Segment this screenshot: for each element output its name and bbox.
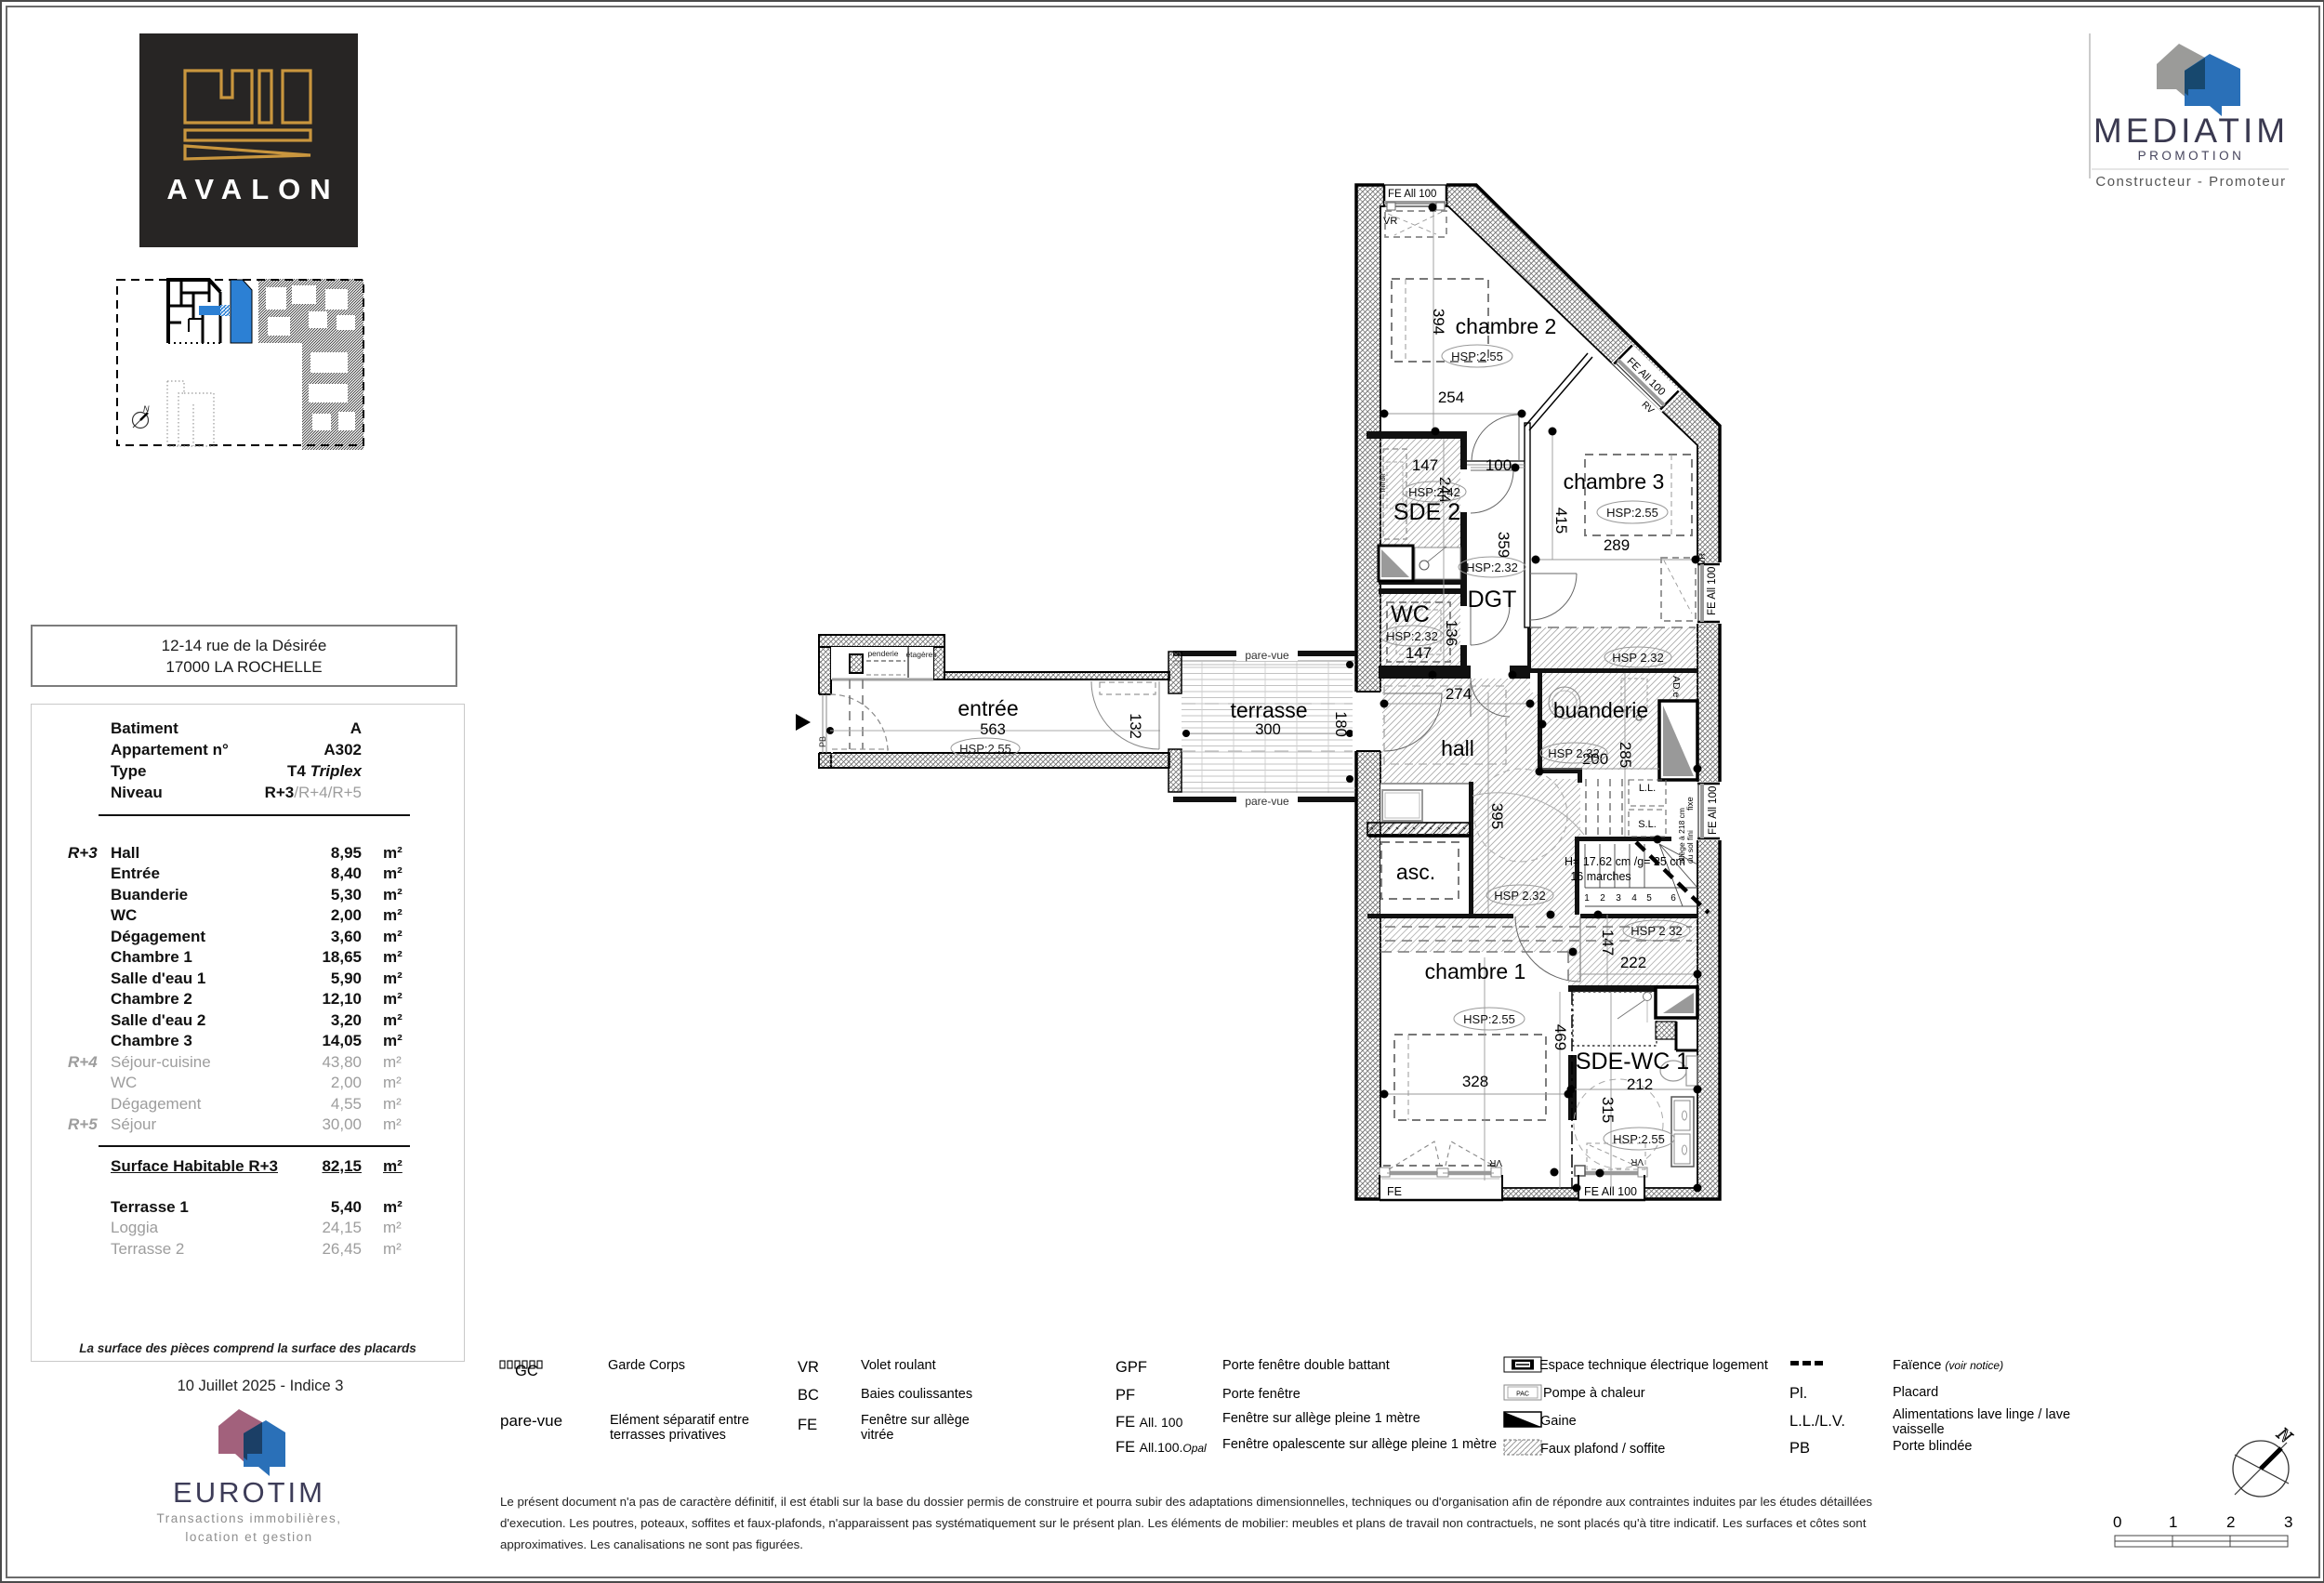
svg-text:HSP:2.42: HSP:2.42: [1408, 485, 1460, 499]
svg-text:HSP 2 32: HSP 2 32: [1631, 924, 1682, 938]
svg-text:254: 254: [1438, 389, 1464, 406]
svg-text:395: 395: [1488, 803, 1506, 829]
svg-text:PB: PB: [818, 736, 827, 747]
svg-text:SDE 2: SDE 2: [1393, 499, 1460, 525]
svg-text:147: 147: [1406, 644, 1432, 662]
svg-text:FE All 100: FE All 100: [1388, 189, 1436, 200]
svg-text:147: 147: [1412, 456, 1438, 474]
svg-text:FE All 100: FE All 100: [1707, 567, 1718, 615]
svg-text:H= 17.62 cm /g= 25 cm: H= 17.62 cm /g= 25 cm: [1565, 855, 1685, 868]
svg-text:fixe: fixe: [1685, 797, 1696, 811]
svg-text:chambre 1: chambre 1: [1425, 959, 1526, 983]
svg-text:VR: VR: [1489, 1157, 1502, 1167]
svg-text:6: 6: [1670, 893, 1676, 904]
svg-text:147: 147: [1599, 930, 1617, 956]
svg-text:3: 3: [1616, 893, 1621, 904]
svg-text:274: 274: [1446, 685, 1472, 703]
svg-text:285: 285: [1617, 742, 1634, 768]
svg-text:terrasse: terrasse: [1230, 698, 1307, 722]
svg-text:HSP:2.55: HSP:2.55: [1463, 1012, 1515, 1026]
svg-text:FE All 100: FE All 100: [1584, 1185, 1637, 1198]
svg-text:VR: VR: [1383, 216, 1397, 227]
svg-text:L.L.: L.L.: [1639, 783, 1656, 794]
svg-text:359: 359: [1495, 532, 1512, 558]
svg-text:300: 300: [1255, 721, 1281, 738]
svg-text:136: 136: [1443, 620, 1460, 646]
svg-text:WC: WC: [1391, 601, 1430, 627]
svg-text:S.L.: S.L.: [1638, 819, 1657, 830]
svg-text:132: 132: [1127, 713, 1143, 739]
svg-text:HSP:2.55: HSP:2.55: [1606, 506, 1658, 520]
svg-text:HSP 2.32: HSP 2.32: [1548, 746, 1599, 760]
svg-text:315: 315: [1599, 1097, 1617, 1123]
svg-text:5: 5: [1646, 893, 1652, 904]
svg-text:HSP:2.55: HSP:2.55: [1451, 350, 1503, 363]
svg-text:2: 2: [1600, 893, 1605, 904]
svg-text:1: 1: [1584, 893, 1590, 904]
svg-text:FE: FE: [1387, 1185, 1402, 1198]
svg-text:penderie: penderie: [867, 649, 898, 658]
svg-text:hall: hall: [1441, 736, 1474, 760]
svg-text:étagères: étagères: [905, 650, 936, 659]
svg-text:394: 394: [1430, 309, 1447, 335]
svg-text:chambre 2: chambre 2: [1456, 314, 1557, 338]
svg-text:16 marches: 16 marches: [1570, 870, 1631, 883]
svg-text:180: 180: [1332, 711, 1349, 737]
svg-text:415: 415: [1552, 508, 1570, 534]
svg-text:289: 289: [1604, 536, 1630, 554]
svg-text:asc.: asc.: [1396, 860, 1435, 884]
svg-text:SDE-WC 1: SDE-WC 1: [1576, 1049, 1689, 1075]
svg-text:328: 328: [1462, 1073, 1488, 1090]
svg-text:miroir: miroir: [1378, 472, 1387, 492]
svg-text:AD.e: AD.e: [1670, 676, 1682, 698]
svg-text:HSP:2.55: HSP:2.55: [959, 742, 1011, 756]
svg-text:HSP:2.55: HSP:2.55: [1613, 1132, 1665, 1146]
svg-text:FE All 100: FE All 100: [1708, 786, 1719, 835]
svg-text:563: 563: [980, 721, 1006, 738]
svg-text:100: 100: [1486, 456, 1512, 474]
svg-text:pare-vue: pare-vue: [1245, 795, 1289, 808]
svg-text:469: 469: [1552, 1024, 1569, 1050]
svg-text:212: 212: [1627, 1075, 1653, 1093]
svg-text:entrée: entrée: [957, 696, 1018, 720]
svg-text:HSP 2.32: HSP 2.32: [1612, 651, 1663, 665]
svg-text:HSP 2.32: HSP 2.32: [1494, 889, 1545, 903]
svg-text:HSP:2.32: HSP:2.32: [1386, 629, 1438, 643]
svg-text:buanderie: buanderie: [1553, 698, 1648, 722]
svg-text:4: 4: [1631, 893, 1637, 904]
svg-text:pare-vue: pare-vue: [1245, 649, 1289, 662]
svg-text:HSP:2.32: HSP:2.32: [1466, 561, 1518, 574]
svg-text:222: 222: [1620, 954, 1646, 971]
svg-text:DGT: DGT: [1468, 587, 1517, 613]
svg-text:chambre 3: chambre 3: [1564, 469, 1665, 494]
